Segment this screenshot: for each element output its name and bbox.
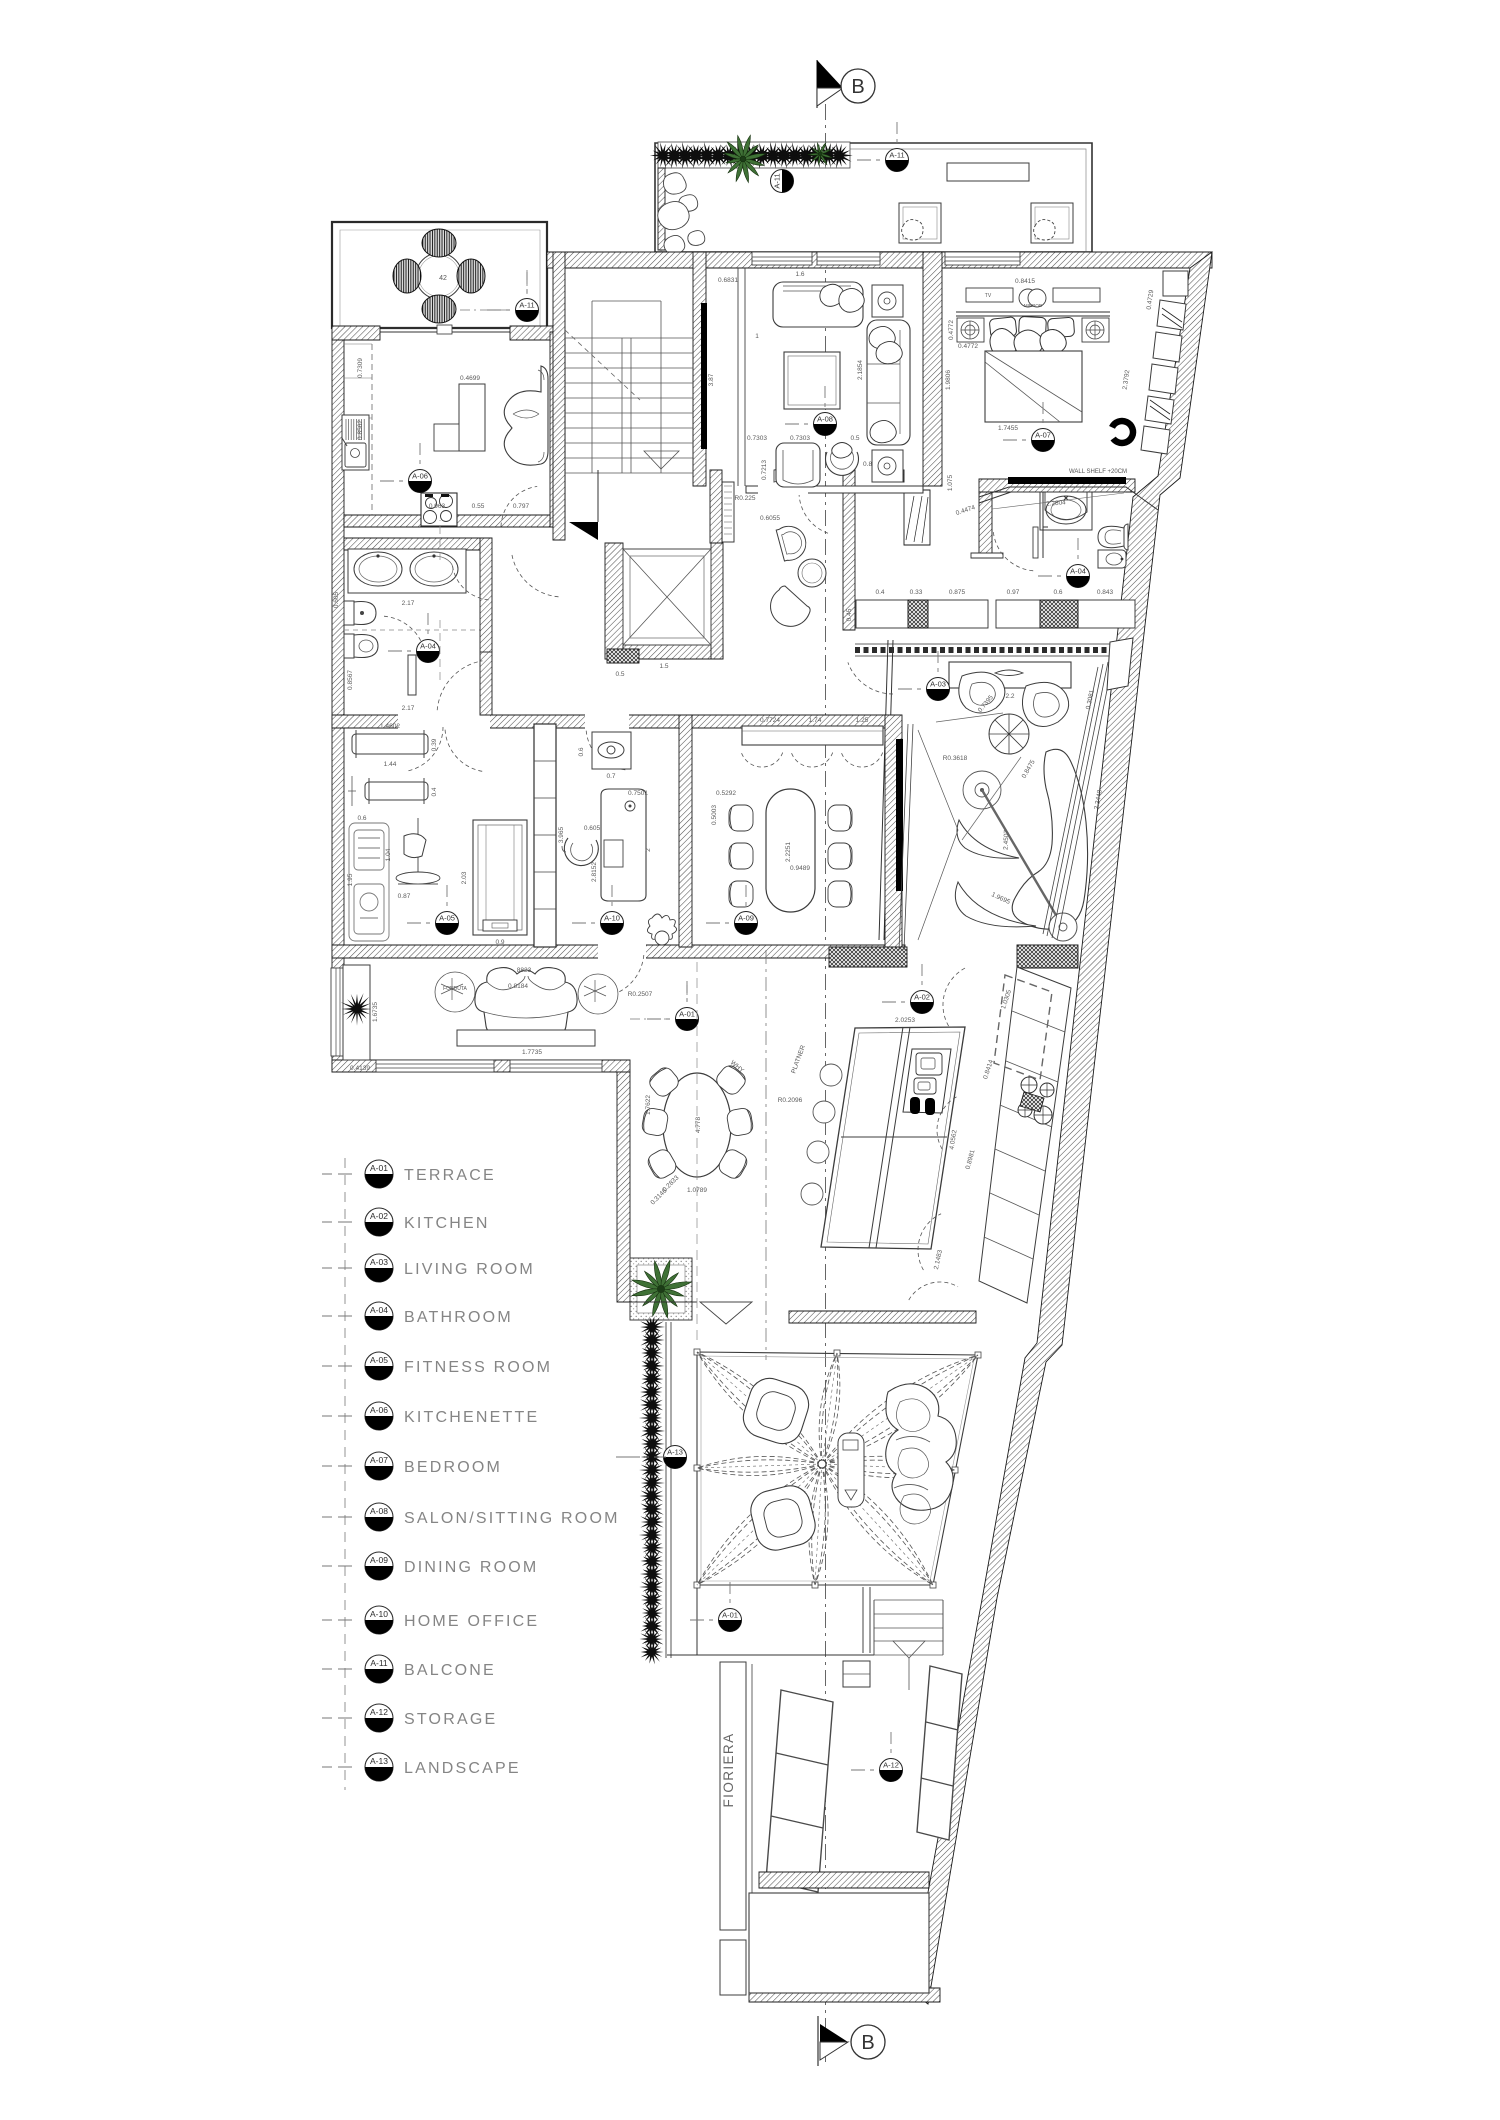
svg-text:0.797: 0.797 <box>513 503 530 510</box>
svg-text:FITNESS ROOM: FITNESS ROOM <box>404 1359 552 1376</box>
svg-text:1.7735: 1.7735 <box>522 1049 542 1056</box>
svg-text:4.778: 4.778 <box>695 1116 702 1133</box>
svg-text:LANDSCAPE: LANDSCAPE <box>404 1760 521 1777</box>
svg-text:BEDROOM: BEDROOM <box>404 1459 502 1476</box>
svg-text:2.0253: 2.0253 <box>895 1017 915 1024</box>
svg-text:TV: TV <box>985 293 992 299</box>
svg-text:A-02: A-02 <box>914 993 930 1002</box>
svg-text:A-05: A-05 <box>439 914 455 923</box>
svg-text:3.87: 3.87 <box>708 373 715 386</box>
svg-text:0.4: 0.4 <box>875 589 884 596</box>
svg-text:1.44: 1.44 <box>384 761 397 768</box>
svg-text:A-05: A-05 <box>370 1355 388 1365</box>
svg-text:0.87: 0.87 <box>398 893 411 900</box>
svg-text:A-07: A-07 <box>1035 431 1051 440</box>
svg-text:2.2804: 2.2804 <box>1046 499 1067 507</box>
svg-text:A-09: A-09 <box>738 914 754 923</box>
svg-text:BALCONE: BALCONE <box>404 1662 496 1679</box>
svg-text:0.5: 0.5 <box>615 671 624 678</box>
svg-text:A-10: A-10 <box>604 914 620 923</box>
svg-text:1.04: 1.04 <box>385 848 392 861</box>
svg-text:0.55: 0.55 <box>472 503 485 510</box>
svg-text:2.17: 2.17 <box>402 705 415 712</box>
svg-text:R0.225: R0.225 <box>735 495 756 502</box>
svg-text:0.963: 0.963 <box>429 503 446 510</box>
svg-text:R0.2096: R0.2096 <box>778 1097 803 1104</box>
svg-text:R0.3618: R0.3618 <box>943 755 968 762</box>
svg-text:1.9806: 1.9806 <box>945 370 952 390</box>
svg-text:A-04: A-04 <box>370 1305 388 1315</box>
svg-text:0.8184: 0.8184 <box>508 983 528 990</box>
svg-text:0.4772: 0.4772 <box>948 320 955 340</box>
svg-text:WALL SHELF +20CM: WALL SHELF +20CM <box>1069 469 1127 475</box>
svg-text:KITCHEN: KITCHEN <box>404 1215 490 1232</box>
svg-text:A-01: A-01 <box>679 1010 695 1019</box>
svg-text:0.8415: 0.8415 <box>1015 278 1035 285</box>
svg-text:A-06: A-06 <box>370 1405 388 1415</box>
svg-text:0.7303: 0.7303 <box>790 435 810 442</box>
svg-text:SALON/SITTING ROOM: SALON/SITTING ROOM <box>404 1510 620 1527</box>
svg-text:DINING ROOM: DINING ROOM <box>404 1559 538 1576</box>
svg-text:1.95: 1.95 <box>347 873 354 886</box>
svg-text:A-02: A-02 <box>370 1211 388 1221</box>
svg-text:1.075: 1.075 <box>947 474 954 491</box>
svg-text:A-06: A-06 <box>412 472 428 481</box>
svg-text:8823: 8823 <box>517 967 532 974</box>
svg-text:0.7213: 0.7213 <box>761 460 768 480</box>
svg-text:0.6: 0.6 <box>1053 589 1062 596</box>
svg-text:3.965: 3.965 <box>558 826 565 843</box>
svg-text:A-09: A-09 <box>370 1555 388 1565</box>
svg-text:B: B <box>851 76 864 98</box>
svg-text:STORAGE: STORAGE <box>404 1711 497 1728</box>
svg-text:A-11: A-11 <box>370 1658 388 1668</box>
svg-text:1.25: 1.25 <box>856 717 869 724</box>
svg-text:A-11: A-11 <box>889 151 904 160</box>
svg-text:A-08: A-08 <box>370 1506 388 1516</box>
svg-text:0.5003: 0.5003 <box>711 805 718 825</box>
svg-text:0.6: 0.6 <box>578 747 585 756</box>
svg-text:A-12: A-12 <box>883 1761 899 1770</box>
svg-text:1: 1 <box>755 333 759 340</box>
svg-text:0.843: 0.843 <box>1097 589 1114 596</box>
svg-text:0.4699: 0.4699 <box>460 375 480 382</box>
svg-text:0.875: 0.875 <box>949 589 966 596</box>
svg-text:0.7: 0.7 <box>606 773 615 780</box>
svg-text:HOME OFFICE: HOME OFFICE <box>404 1613 539 1630</box>
svg-text:0.7309: 0.7309 <box>357 358 364 378</box>
svg-text:A-13: A-13 <box>370 1756 388 1766</box>
svg-text:0.4139: 0.4139 <box>350 1065 370 1072</box>
svg-text:A-11: A-11 <box>519 301 534 310</box>
svg-text:0.605: 0.605 <box>333 591 340 608</box>
svg-text:0.8562: 0.8562 <box>357 420 364 440</box>
svg-text:A-04: A-04 <box>420 642 436 651</box>
svg-text:2.8152: 2.8152 <box>591 862 598 882</box>
svg-text:1.4602: 1.4602 <box>380 723 400 730</box>
svg-text:1.74: 1.74 <box>809 717 822 724</box>
svg-text:1.6735: 1.6735 <box>372 1002 379 1022</box>
svg-text:A-08: A-08 <box>817 415 833 424</box>
svg-text:2.17: 2.17 <box>402 600 415 607</box>
svg-text:0.6: 0.6 <box>357 815 366 822</box>
svg-text:0.4772: 0.4772 <box>958 343 978 350</box>
svg-text:2.2: 2.2 <box>1005 693 1014 700</box>
svg-text:1.7455: 1.7455 <box>998 425 1018 432</box>
svg-text:A-01: A-01 <box>722 1611 738 1620</box>
svg-text:1.7622: 1.7622 <box>645 1095 652 1115</box>
svg-text:A-04: A-04 <box>1070 567 1086 576</box>
svg-text:A-10: A-10 <box>370 1609 388 1619</box>
svg-text:TERRACE: TERRACE <box>404 1167 496 1184</box>
svg-text:KITCHENETTE: KITCHENETTE <box>404 1409 539 1426</box>
svg-text:0.4: 0.4 <box>431 787 438 796</box>
svg-text:0.97: 0.97 <box>1007 589 1020 596</box>
svg-text:R0.2507: R0.2507 <box>628 991 653 998</box>
svg-text:2.1854: 2.1854 <box>857 360 864 380</box>
svg-text:0.5292: 0.5292 <box>716 790 736 797</box>
svg-text:0.7724: 0.7724 <box>760 717 780 724</box>
svg-text:42: 42 <box>439 275 447 282</box>
svg-text:0.33: 0.33 <box>910 589 923 596</box>
svg-text:MIRROR: MIRROR <box>1024 303 1043 308</box>
svg-text:B: B <box>861 2032 874 2054</box>
svg-text:0.5: 0.5 <box>850 435 859 442</box>
svg-text:0.605: 0.605 <box>584 825 601 832</box>
svg-text:A-03: A-03 <box>370 1257 388 1267</box>
svg-text:A-01: A-01 <box>370 1163 388 1173</box>
svg-text:A-03: A-03 <box>930 680 946 689</box>
svg-text:0.39: 0.39 <box>431 738 438 751</box>
svg-text:0.6831: 0.6831 <box>718 277 738 284</box>
svg-text:2.03: 2.03 <box>461 871 468 884</box>
svg-text:A-12: A-12 <box>370 1707 388 1717</box>
svg-text:2.4507: 2.4507 <box>1003 830 1011 850</box>
svg-text:FIORIERA: FIORIERA <box>721 1733 736 1808</box>
svg-text:A-13: A-13 <box>667 1448 683 1457</box>
svg-text:0.9: 0.9 <box>495 939 504 946</box>
svg-text:0.45: 0.45 <box>846 608 853 621</box>
svg-text:0.7501: 0.7501 <box>628 790 648 797</box>
svg-text:1.6: 1.6 <box>795 271 804 278</box>
svg-text:0.6055: 0.6055 <box>760 515 780 522</box>
svg-text:2.2251: 2.2251 <box>785 842 792 862</box>
svg-text:A-07: A-07 <box>370 1455 388 1465</box>
svg-text:0.7303: 0.7303 <box>747 435 767 442</box>
svg-text:2: 2 <box>645 848 652 852</box>
svg-text:0.9489: 0.9489 <box>790 865 810 872</box>
svg-text:0.8567: 0.8567 <box>347 670 354 690</box>
svg-text:A-11: A-11 <box>773 173 782 188</box>
svg-text:FONDUTA: FONDUTA <box>443 986 467 992</box>
svg-text:1.5: 1.5 <box>659 663 668 670</box>
svg-text:BATHROOM: BATHROOM <box>404 1309 513 1326</box>
svg-text:LIVING ROOM: LIVING ROOM <box>404 1261 535 1278</box>
